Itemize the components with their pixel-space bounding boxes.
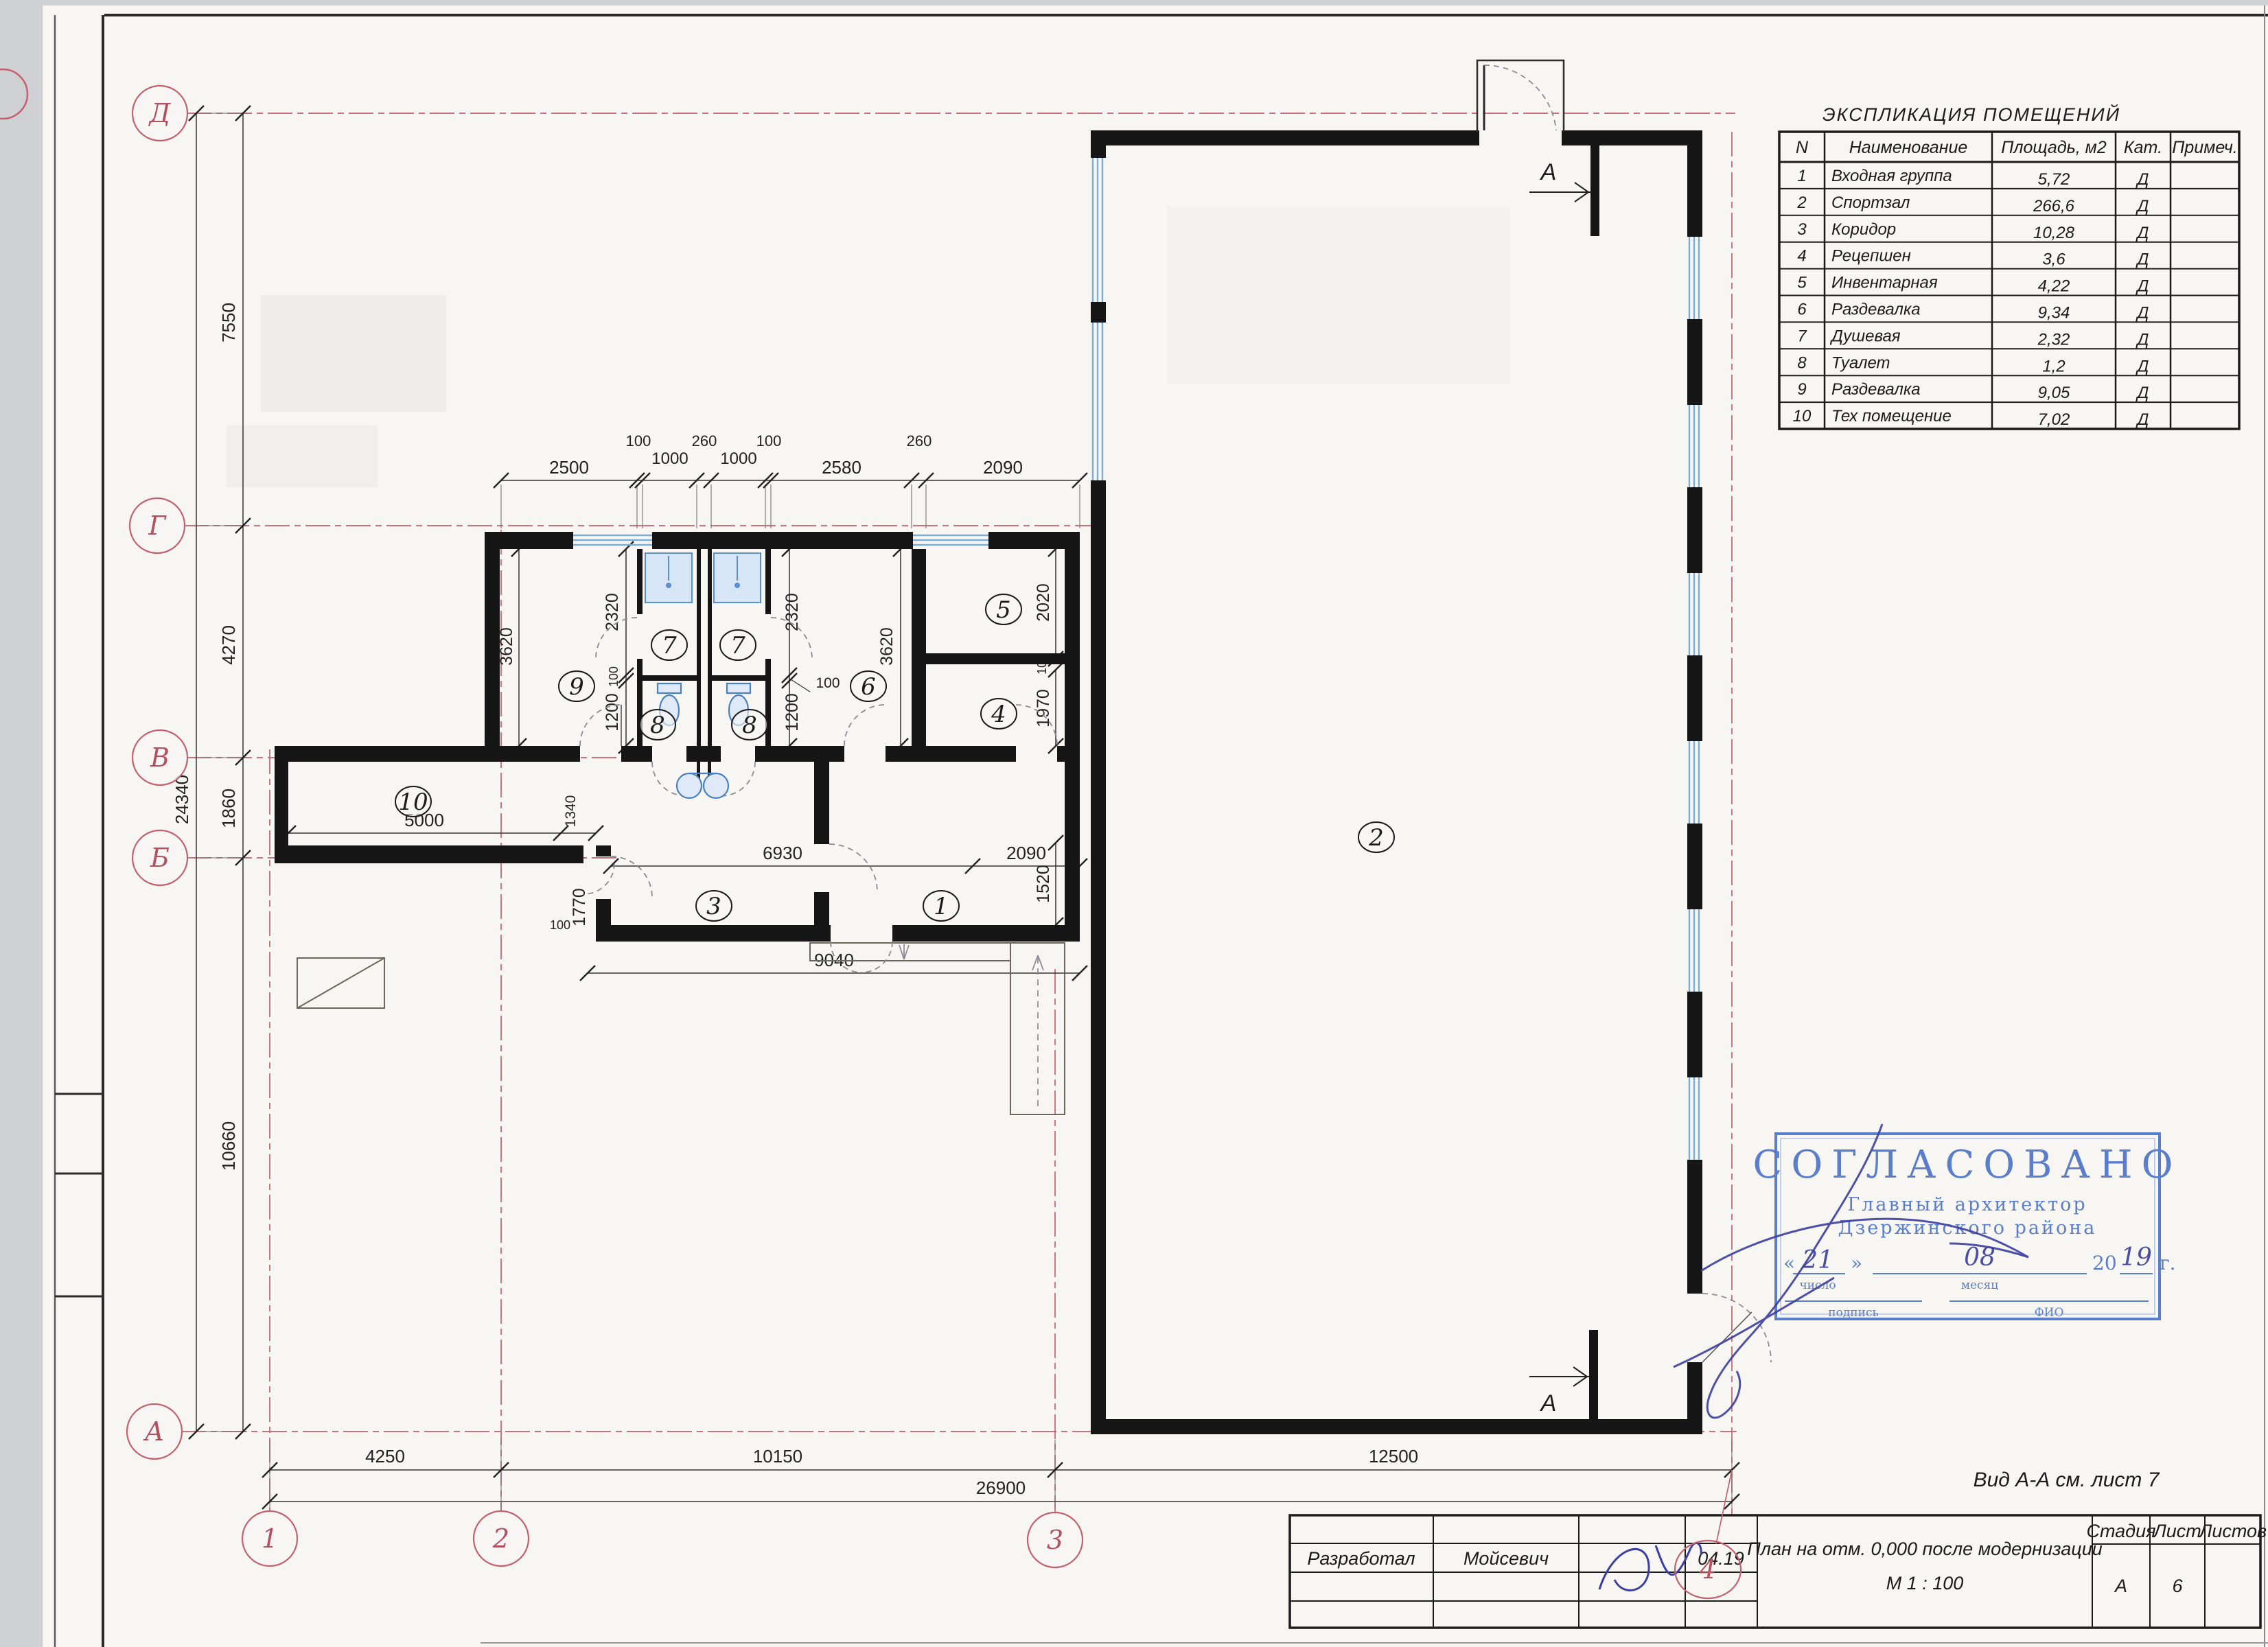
dim-label: 10660 xyxy=(218,1121,239,1171)
wall-pier xyxy=(1687,992,1702,1077)
cell-area: 2,32 xyxy=(2037,330,2070,349)
cell-area: 266,6 xyxy=(2033,197,2075,215)
dim-label: 1000 xyxy=(651,449,688,468)
cell-number: 7 xyxy=(1797,327,1807,345)
sheet-background xyxy=(0,0,2268,1647)
dim-label: 1200 xyxy=(603,693,622,732)
wall-pier xyxy=(1687,319,1702,405)
stamp-line1: Главный архитектор xyxy=(1847,1194,2087,1215)
dim-label: 100 xyxy=(756,432,782,449)
axis-label-d: Д xyxy=(148,98,172,128)
room-label-r7a: 7 xyxy=(651,630,687,660)
cell-category: Д xyxy=(2136,277,2149,296)
dim-label: 2580 xyxy=(822,457,861,478)
room-label-r9: 9 xyxy=(559,671,594,701)
dim-label: 2320 xyxy=(783,593,802,631)
wall-pier xyxy=(1687,655,1702,741)
cell-category: Д xyxy=(2136,410,2149,429)
shower-tray xyxy=(714,553,761,603)
dim-label: 1000 xyxy=(720,449,756,468)
cell-name: Душевая xyxy=(1829,327,1901,345)
cell-area: 1,2 xyxy=(2042,357,2065,375)
stamp-quote-open: « xyxy=(1783,1252,1795,1274)
cell-number: 8 xyxy=(1797,353,1807,372)
cell-area: 9,05 xyxy=(2038,384,2070,402)
cell-name: Спортзал xyxy=(1831,194,1910,212)
axis-label-a: А xyxy=(143,1416,165,1447)
dim-label: 1340 xyxy=(563,795,579,828)
room-label-r5: 5 xyxy=(986,594,1021,624)
svg-text:9: 9 xyxy=(569,673,584,701)
svg-text:5: 5 xyxy=(996,596,1011,624)
axis-label-n2: 2 xyxy=(492,1523,509,1554)
section-letter: А xyxy=(1540,159,1557,185)
dim-label: 1860 xyxy=(218,789,239,828)
wall-pier xyxy=(1687,1362,1702,1419)
stage-label: Стадия xyxy=(2086,1521,2155,1541)
dim-label: 2090 xyxy=(983,457,1023,478)
dim-label: 100 xyxy=(626,432,651,449)
svg-text:2: 2 xyxy=(1368,824,1384,852)
col-header-area: Площадь, м2 xyxy=(2001,138,2107,157)
wall-pier xyxy=(1687,487,1702,573)
cell-category: Д xyxy=(2136,304,2149,323)
dim-label: 2500 xyxy=(549,457,589,478)
dim-label: 2320 xyxy=(603,593,622,631)
dim-label: 10150 xyxy=(753,1446,802,1467)
dim-label: 4270 xyxy=(218,625,239,665)
axis-label-4: 4 xyxy=(1699,1554,1716,1585)
svg-text:8: 8 xyxy=(650,712,665,739)
col-header-note: Примеч. xyxy=(2172,138,2237,157)
cell-area: 3,6 xyxy=(2042,250,2065,269)
axis-bubble-b: Б xyxy=(132,830,187,885)
svg-text:3: 3 xyxy=(706,893,721,920)
stamp-year-suffix: г. xyxy=(2160,1252,2176,1274)
axis-bubble-v: В xyxy=(132,730,187,785)
cell-name: Входная группа xyxy=(1831,167,1952,185)
axis-label-g: Г xyxy=(148,511,167,541)
room-label-r3: 3 xyxy=(696,891,732,921)
stamp-label-sign: подпись xyxy=(1828,1306,1878,1320)
cell-category: Д xyxy=(2136,224,2149,242)
developed-label: Разработал xyxy=(1307,1548,1415,1569)
cell-category: Д xyxy=(2136,250,2149,269)
sheet-value: 6 xyxy=(2172,1576,2183,1596)
dim-label: 4250 xyxy=(365,1446,405,1467)
cell-category: Д xyxy=(2136,330,2149,349)
sheet-label: Лист xyxy=(2152,1521,2201,1541)
cell-number: 10 xyxy=(1793,407,1812,425)
room-label-r6: 6 xyxy=(850,671,886,701)
room-label-r8b: 8 xyxy=(732,710,767,740)
svg-text:8: 8 xyxy=(742,712,757,739)
dim-label: 260 xyxy=(692,432,717,449)
section-letter: А xyxy=(1540,1390,1557,1416)
cell-category: Д xyxy=(2136,197,2149,215)
explication-title: ЭКСПЛИКАЦИЯ ПОМЕЩЕНИЙ xyxy=(1822,103,2120,125)
cell-number: 1 xyxy=(1797,167,1806,185)
section-bar-top xyxy=(1590,145,1599,236)
title-block: Разработал Мойсевич 04.19 План на отм. 0… xyxy=(1290,1515,2267,1628)
cell-area: 7,02 xyxy=(2038,410,2070,429)
svg-text:7: 7 xyxy=(662,632,677,659)
room-label-r7b: 7 xyxy=(720,630,756,660)
cell-name: Раздевалка xyxy=(1831,301,1921,319)
dim-label: 7550 xyxy=(218,303,239,342)
room-label-r1: 1 xyxy=(923,891,959,921)
cell-area: 10,28 xyxy=(2033,224,2075,242)
axis-bubble-n2: 2 xyxy=(474,1511,529,1566)
axis-label-v: В xyxy=(150,743,170,773)
axis-bubble-n3: 3 xyxy=(1028,1512,1083,1567)
view-note: Вид А-А см. лист 7 xyxy=(1974,1469,2160,1491)
col-header-n: N xyxy=(1796,138,1809,157)
cell-name: Тех помещение xyxy=(1831,407,1952,425)
room-label-r10: 10 xyxy=(395,786,431,817)
cell-category: Д xyxy=(2136,357,2149,375)
drawing-title: План на отм. 0,000 после модернизации xyxy=(1747,1539,2103,1559)
cell-number: 4 xyxy=(1797,247,1806,266)
developed-name: Мойсевич xyxy=(1463,1548,1549,1569)
dim-label: 2090 xyxy=(1006,843,1046,863)
dim-label: 3620 xyxy=(877,627,896,666)
dim-label: 1970 xyxy=(1034,689,1053,727)
col-header-cat: Кат. xyxy=(2124,138,2162,157)
dim-label: 1200 xyxy=(783,693,802,732)
section-bar-bottom xyxy=(1589,1330,1598,1421)
svg-text:10: 10 xyxy=(398,789,428,816)
room-label-r2: 2 xyxy=(1358,822,1394,852)
cell-number: 5 xyxy=(1797,274,1807,292)
svg-text:6: 6 xyxy=(861,673,876,701)
stamp-label-fio: ФИО xyxy=(2035,1306,2064,1320)
dim-label: 6930 xyxy=(763,843,802,863)
dim-label: 260 xyxy=(907,432,932,449)
axis-bubble-d: Д xyxy=(132,86,187,141)
wall-pier xyxy=(1687,130,1702,237)
dim-label: 100 xyxy=(607,666,621,687)
cell-number: 2 xyxy=(1796,194,1806,212)
cell-name: Раздевалка xyxy=(1831,380,1921,399)
cell-name: Инвентарная xyxy=(1831,274,1938,292)
wall-pier xyxy=(1687,1160,1702,1294)
cell-name: Туалет xyxy=(1831,353,1890,372)
dim-label: 26900 xyxy=(976,1477,1026,1498)
cell-category: Д xyxy=(2136,384,2149,402)
cell-area: 5,72 xyxy=(2038,170,2070,189)
drawing-scale: М 1 : 100 xyxy=(1886,1573,1964,1593)
dim-label: 1770 xyxy=(570,888,589,926)
wall-pier xyxy=(1687,823,1702,909)
svg-text:4: 4 xyxy=(991,701,1006,728)
dim-label: 1520 xyxy=(1034,865,1053,903)
dim-label: 100 xyxy=(815,675,840,691)
stamp-year-handwritten: 19 xyxy=(2120,1243,2152,1272)
stage-value: А xyxy=(2114,1576,2127,1596)
stamp-label-month: месяц xyxy=(1961,1278,1999,1292)
axis-bubble-a: А xyxy=(127,1404,182,1459)
cell-name: Рецепшен xyxy=(1831,247,1911,266)
cell-number: 6 xyxy=(1797,301,1807,319)
svg-text:7: 7 xyxy=(730,632,745,659)
stamp-title: СОГЛАСОВАНО xyxy=(1752,1143,2182,1187)
dim-label: 24340 xyxy=(172,775,192,824)
col-header-name: Наименование xyxy=(1849,138,1968,157)
sheets-label: Листов xyxy=(2198,1521,2267,1541)
cell-area: 4,22 xyxy=(2038,277,2070,296)
dim-label: 2020 xyxy=(1034,583,1053,622)
room-label-r4: 4 xyxy=(981,699,1017,729)
stamp-line2: Дзержинского района xyxy=(1838,1217,2097,1239)
cell-name: Коридор xyxy=(1831,220,1896,239)
svg-text:1: 1 xyxy=(934,893,949,920)
cell-category: Д xyxy=(2136,170,2149,189)
cell-area: 9,34 xyxy=(2038,304,2070,323)
axis-label-n3: 3 xyxy=(1047,1525,1063,1555)
axis-bubble-n1: 1 xyxy=(242,1511,297,1566)
room-label-r8a: 8 xyxy=(640,710,675,740)
axis-label-b: Б xyxy=(150,843,170,873)
dim-label: 12500 xyxy=(1369,1446,1418,1467)
dim-label: 3620 xyxy=(497,627,516,666)
cell-number: 9 xyxy=(1797,380,1806,399)
stamp-quote-close: » xyxy=(1851,1252,1862,1274)
dim-label: 100 xyxy=(550,918,570,932)
cell-number: 3 xyxy=(1797,220,1807,239)
axis-label-n1: 1 xyxy=(262,1523,278,1554)
axis-bubble-g: Г xyxy=(130,498,185,553)
shower-tray xyxy=(645,553,692,603)
stamp-year-prefix: 20 xyxy=(2092,1252,2117,1274)
scanned-drawing-sheet: 2500100100026010001002580260209042501015… xyxy=(0,0,2268,1647)
